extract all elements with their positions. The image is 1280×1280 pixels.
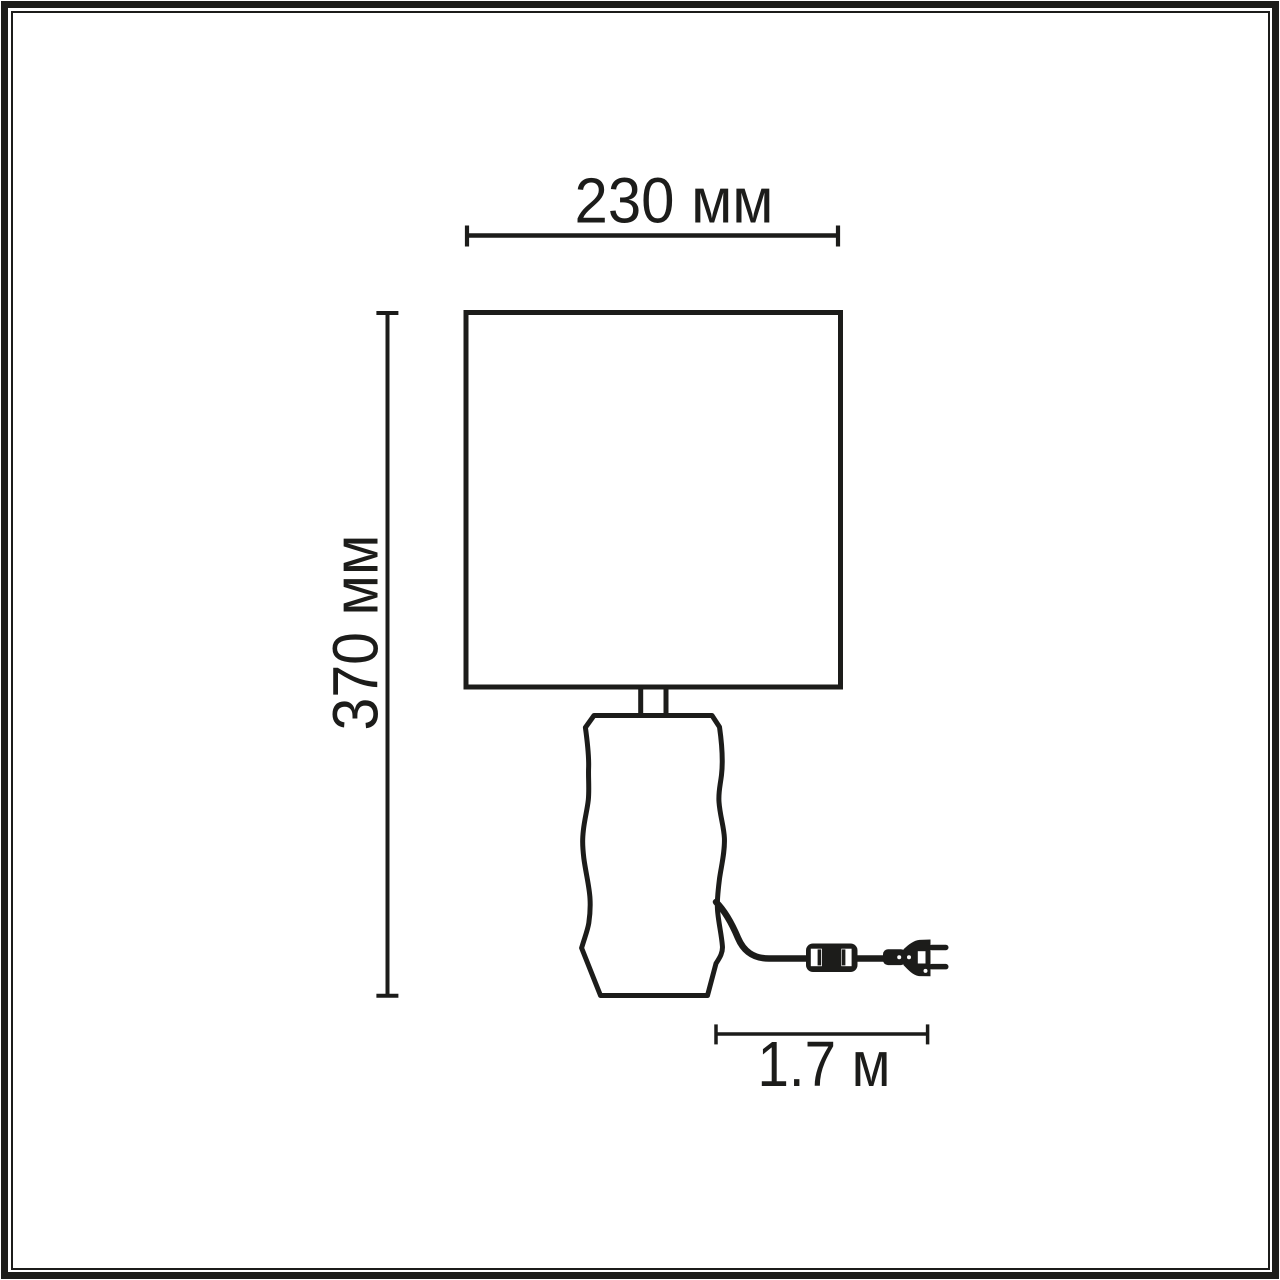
svg-text:1.7 м: 1.7 м — [758, 1028, 891, 1100]
svg-text:230 мм: 230 мм — [575, 165, 774, 237]
svg-text:370 мм: 370 мм — [320, 535, 392, 731]
